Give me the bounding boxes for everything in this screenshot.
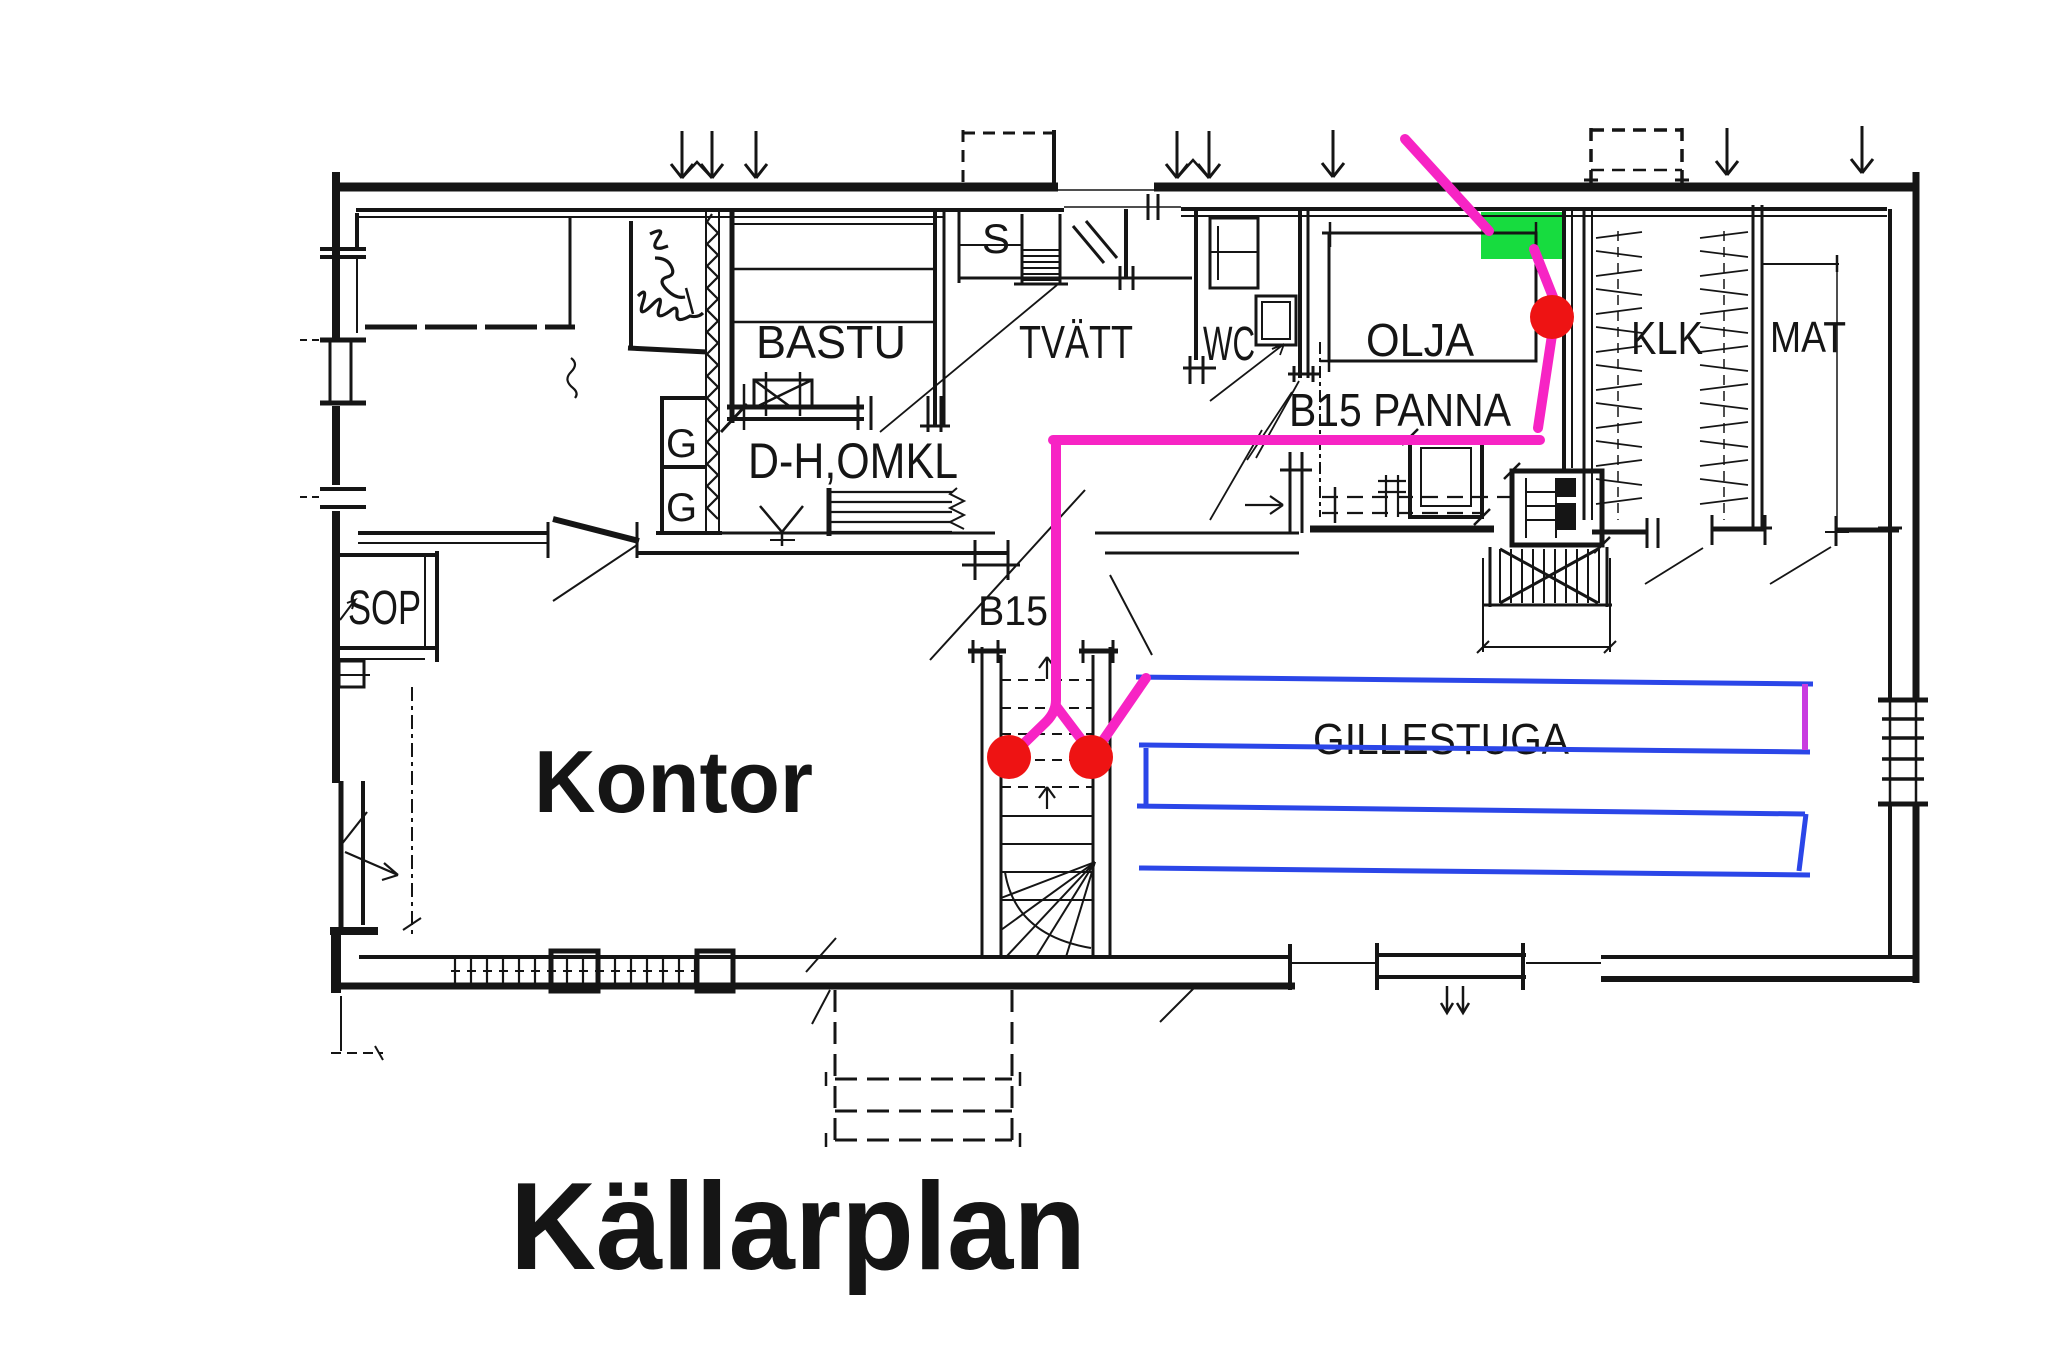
svg-text:SOP: SOP (348, 582, 421, 635)
svg-text:B15 PANNA: B15 PANNA (1289, 384, 1511, 436)
svg-text:BASTU: BASTU (756, 316, 906, 368)
svg-text:GILLESTUGA: GILLESTUGA (1313, 715, 1570, 764)
svg-text:Källarplan: Källarplan (510, 1158, 1086, 1296)
svg-text:MAT: MAT (1770, 313, 1846, 362)
svg-text:OLJA: OLJA (1366, 314, 1474, 366)
svg-text:Kontor: Kontor (534, 732, 813, 831)
svg-text:WC: WC (1203, 318, 1255, 371)
svg-text:S: S (982, 215, 1010, 262)
svg-text:G: G (666, 422, 697, 466)
svg-text:KLK: KLK (1631, 312, 1703, 364)
svg-text:D-H,OMKL: D-H,OMKL (748, 433, 958, 489)
svg-text:TVÄTT: TVÄTT (1019, 316, 1133, 368)
svg-text:B15: B15 (978, 587, 1048, 634)
svg-text:G: G (666, 486, 697, 530)
